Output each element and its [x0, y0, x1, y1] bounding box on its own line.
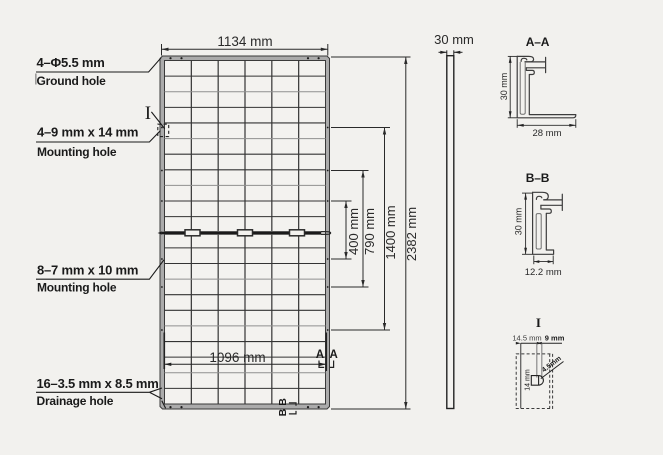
svg-text:14.5 mm: 14.5 mm [512, 334, 541, 343]
svg-text:B–B: B–B [526, 171, 550, 185]
svg-text:9 mm: 9 mm [545, 334, 565, 343]
svg-text:Ground hole: Ground hole [37, 74, 107, 88]
svg-text:12.2 mm: 12.2 mm [525, 267, 562, 278]
svg-text:28 mm: 28 mm [532, 128, 561, 139]
svg-text:A–A: A–A [526, 35, 550, 49]
svg-text:Mounting hole: Mounting hole [37, 145, 117, 159]
svg-text:Drainage hole: Drainage hole [37, 394, 114, 408]
svg-text:I: I [536, 315, 541, 330]
svg-text:Mounting hole: Mounting hole [37, 281, 117, 295]
svg-text:1400 mm: 1400 mm [383, 205, 398, 259]
svg-text:B: B [277, 398, 289, 406]
svg-text:1096 mm: 1096 mm [209, 350, 265, 365]
svg-text:30 mm: 30 mm [513, 208, 523, 236]
svg-text:2382 mm: 2382 mm [404, 207, 419, 261]
svg-text:30 mm: 30 mm [499, 73, 509, 101]
svg-text:8–7 mm x 10 mm: 8–7 mm x 10 mm [37, 263, 138, 278]
svg-text:16–3.5 mm x 8.5 mm: 16–3.5 mm x 8.5 mm [37, 376, 159, 391]
svg-text:4–Φ5.5 mm: 4–Φ5.5 mm [37, 55, 105, 70]
svg-text:A: A [316, 349, 324, 361]
svg-text:30 mm: 30 mm [434, 32, 474, 47]
svg-text:B: B [277, 408, 289, 416]
svg-text:400 mm: 400 mm [346, 208, 361, 255]
svg-text:4–9 mm x 14 mm: 4–9 mm x 14 mm [37, 125, 138, 140]
svg-text:I: I [145, 103, 151, 124]
svg-text:790 mm: 790 mm [362, 208, 377, 255]
svg-text:14 mm: 14 mm [525, 369, 532, 391]
svg-text:A: A [329, 349, 337, 361]
svg-text:1134 mm: 1134 mm [217, 34, 272, 49]
